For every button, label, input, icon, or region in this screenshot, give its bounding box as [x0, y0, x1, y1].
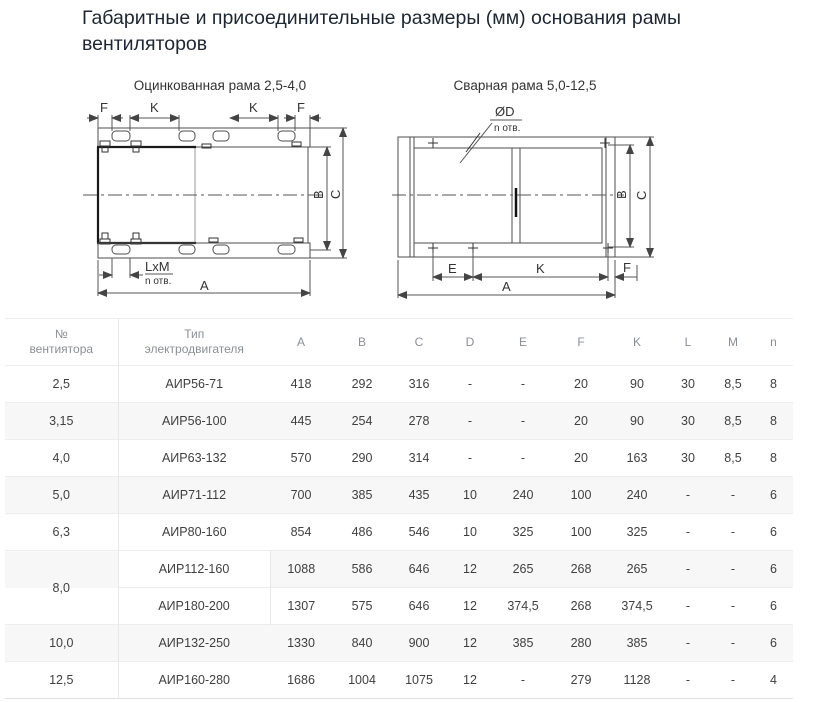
- cell-c: 900: [392, 625, 446, 662]
- cell-n: 6: [754, 588, 793, 625]
- cell-l: 30: [664, 440, 712, 477]
- cell-m: 8,5: [712, 403, 754, 440]
- cell-d: 10: [446, 514, 494, 551]
- dim-label-f1: F: [100, 100, 108, 115]
- cell-l: -: [664, 477, 712, 514]
- cell-n: 4: [754, 662, 793, 699]
- cell-fan-no: 4,0: [5, 440, 118, 477]
- cell-e: -: [494, 662, 552, 699]
- cell-k: 163: [610, 440, 664, 477]
- cell-c: 435: [392, 477, 446, 514]
- cell-k: 1128: [610, 662, 664, 699]
- table-row: 5,0 АИР71-112 700 385 435 10 240 100 240…: [5, 477, 793, 514]
- cell-m: -: [712, 514, 754, 551]
- header-fan-no: № вентиятора: [5, 319, 118, 366]
- cell-motor-type: АИР56-71: [118, 366, 270, 403]
- cell-e: 374,5: [494, 588, 552, 625]
- cell-n: 6: [754, 551, 793, 588]
- cell-n: 8: [754, 440, 793, 477]
- cell-motor-type: АИР132-250: [118, 625, 270, 662]
- cell-k: 385: [610, 625, 664, 662]
- cell-a: 1088: [270, 551, 332, 588]
- cell-motor-type: АИР71-112: [118, 477, 270, 514]
- dim-label-diam-d: ØD: [495, 104, 515, 119]
- header-b: B: [332, 319, 392, 366]
- dim-label-f-right: F: [623, 260, 631, 275]
- cell-e: 385: [494, 625, 552, 662]
- cell-fan-no-group: 8,0: [5, 551, 118, 625]
- cell-motor-type: АИР160-280: [118, 662, 270, 699]
- cell-a: 418: [270, 366, 332, 403]
- cell-c: 646: [392, 588, 446, 625]
- table-row: 8,0 АИР112-160 1088 586 646 12 265 268 2…: [5, 551, 793, 588]
- header-e: E: [494, 319, 552, 366]
- cell-fan-no: 12,5: [5, 662, 118, 699]
- cell-n: 8: [754, 403, 793, 440]
- cell-b: 292: [332, 366, 392, 403]
- cell-k: 240: [610, 477, 664, 514]
- page-title: Габаритные и присоединительные размеры (…: [82, 5, 794, 57]
- cell-c: 316: [392, 366, 446, 403]
- cell-d: 12: [446, 588, 494, 625]
- cell-k: 325: [610, 514, 664, 551]
- cell-e: -: [494, 440, 552, 477]
- cell-d: -: [446, 366, 494, 403]
- cell-n: 8: [754, 366, 793, 403]
- cell-motor-type: АИР80-160: [118, 514, 270, 551]
- table-row: 4,0 АИР63-132 570 290 314 - - 20 163 30 …: [5, 440, 793, 477]
- header-n: n: [754, 319, 793, 366]
- cell-a: 700: [270, 477, 332, 514]
- page: { "page": { "title": "Габаритные и присо…: [0, 0, 818, 702]
- cell-m: -: [712, 625, 754, 662]
- cell-m: -: [712, 551, 754, 588]
- cell-c: 1075: [392, 662, 446, 699]
- cell-l: 30: [664, 366, 712, 403]
- cell-f: 20: [552, 403, 610, 440]
- table-row: 6,3 АИР80-160 854 486 546 10 325 100 325…: [5, 514, 793, 551]
- cell-n: 6: [754, 625, 793, 662]
- cell-motor-type: АИР112-160: [118, 551, 270, 588]
- cell-b: 575: [332, 588, 392, 625]
- cell-b: 290: [332, 440, 392, 477]
- cell-n: 6: [754, 514, 793, 551]
- dim-label-a-right: A: [502, 279, 511, 294]
- header-c: C: [392, 319, 446, 366]
- header-l: L: [664, 319, 712, 366]
- left-drawing-caption: Оцинкованная рама 2,5-4,0: [75, 78, 365, 93]
- cell-a: 1307: [270, 588, 332, 625]
- cell-fan-no: 5,0: [5, 477, 118, 514]
- cell-fan-no: 2,5: [5, 366, 118, 403]
- dim-label-e: E: [448, 261, 457, 276]
- cell-b: 486: [332, 514, 392, 551]
- dim-label-k1: K: [150, 100, 159, 115]
- cell-d: 12: [446, 662, 494, 699]
- cell-a: 570: [270, 440, 332, 477]
- cell-k: 265: [610, 551, 664, 588]
- cell-e: 325: [494, 514, 552, 551]
- cell-f: 100: [552, 477, 610, 514]
- cell-c: 278: [392, 403, 446, 440]
- cell-k: 90: [610, 366, 664, 403]
- cell-f: 100: [552, 514, 610, 551]
- cell-l: -: [664, 588, 712, 625]
- cell-l: -: [664, 514, 712, 551]
- cell-k: 374,5: [610, 588, 664, 625]
- cell-motor-type: АИР180-200: [118, 588, 270, 625]
- cell-e: -: [494, 403, 552, 440]
- cell-fan-no: 10,0: [5, 625, 118, 662]
- cell-d: -: [446, 403, 494, 440]
- cell-a: 1330: [270, 625, 332, 662]
- cell-m: 8,5: [712, 366, 754, 403]
- cell-n: 6: [754, 477, 793, 514]
- table-header-row: № вентиятора Тип электродвигателя A B C …: [5, 319, 793, 366]
- header-f: F: [552, 319, 610, 366]
- cell-b: 840: [332, 625, 392, 662]
- cell-b: 254: [332, 403, 392, 440]
- right-drawing-caption: Сварная рама 5,0-12,5: [390, 78, 660, 93]
- cell-f: 280: [552, 625, 610, 662]
- cell-fan-no: 6,3: [5, 514, 118, 551]
- header-k: K: [610, 319, 664, 366]
- table-row: 10,0 АИР132-250 1330 840 900 12 385 280 …: [5, 625, 793, 662]
- cell-a: 854: [270, 514, 332, 551]
- dim-label-f2: F: [297, 100, 305, 115]
- cell-l: -: [664, 625, 712, 662]
- dim-label-n-otv-right: n отв.: [494, 123, 520, 134]
- welded-frame-drawing: ØD n отв. E K F A B C: [390, 95, 700, 310]
- cell-d: 10: [446, 477, 494, 514]
- cell-a: 445: [270, 403, 332, 440]
- dim-label-lxm: LxM: [145, 259, 170, 274]
- header-a: A: [270, 319, 332, 366]
- galvanized-frame-drawing: F K K F LxM n отв. A B C: [75, 95, 365, 310]
- dim-label-n-otv-left: n отв.: [145, 276, 171, 287]
- dim-label-c-right: C: [634, 191, 649, 200]
- dim-label-k-right: K: [536, 261, 545, 276]
- table-row: 3,15 АИР56-100 445 254 278 - - 20 90 30 …: [5, 403, 793, 440]
- cell-f: 20: [552, 366, 610, 403]
- dimensions-table: № вентиятора Тип электродвигателя A B C …: [5, 318, 793, 699]
- header-m: M: [712, 319, 754, 366]
- cell-c: 314: [392, 440, 446, 477]
- cell-c: 646: [392, 551, 446, 588]
- cell-m: -: [712, 662, 754, 699]
- dim-label-k2: K: [249, 100, 258, 115]
- cell-l: 30: [664, 403, 712, 440]
- cell-f: 268: [552, 588, 610, 625]
- cell-motor-type: АИР56-100: [118, 403, 270, 440]
- cell-f: 268: [552, 551, 610, 588]
- cell-f: 20: [552, 440, 610, 477]
- dim-label-b-left: B: [311, 190, 326, 199]
- cell-m: 8,5: [712, 440, 754, 477]
- cell-fan-no: 3,15: [5, 403, 118, 440]
- cell-c: 546: [392, 514, 446, 551]
- dim-label-c-left: C: [328, 190, 343, 199]
- cell-b: 586: [332, 551, 392, 588]
- cell-m: -: [712, 477, 754, 514]
- dim-label-b-right: B: [614, 190, 629, 199]
- table-row: 12,5 АИР160-280 1686 1004 1075 12 - 279 …: [5, 662, 793, 699]
- cell-d: 12: [446, 625, 494, 662]
- cell-e: 240: [494, 477, 552, 514]
- dim-label-a-left: A: [200, 278, 209, 293]
- cell-e: 265: [494, 551, 552, 588]
- cell-a: 1686: [270, 662, 332, 699]
- cell-d: 12: [446, 551, 494, 588]
- cell-f: 279: [552, 662, 610, 699]
- cell-b: 385: [332, 477, 392, 514]
- cell-l: -: [664, 551, 712, 588]
- cell-m: -: [712, 588, 754, 625]
- cell-e: -: [494, 366, 552, 403]
- cell-b: 1004: [332, 662, 392, 699]
- header-d: D: [446, 319, 494, 366]
- cell-l: -: [664, 662, 712, 699]
- cell-k: 90: [610, 403, 664, 440]
- cell-d: -: [446, 440, 494, 477]
- header-motor-type: Тип электродвигателя: [118, 319, 270, 366]
- cell-motor-type: АИР63-132: [118, 440, 270, 477]
- table-row: АИР180-200 1307 575 646 12 374,5 268 374…: [5, 588, 793, 625]
- table-row: 2,5 АИР56-71 418 292 316 - - 20 90 30 8,…: [5, 366, 793, 403]
